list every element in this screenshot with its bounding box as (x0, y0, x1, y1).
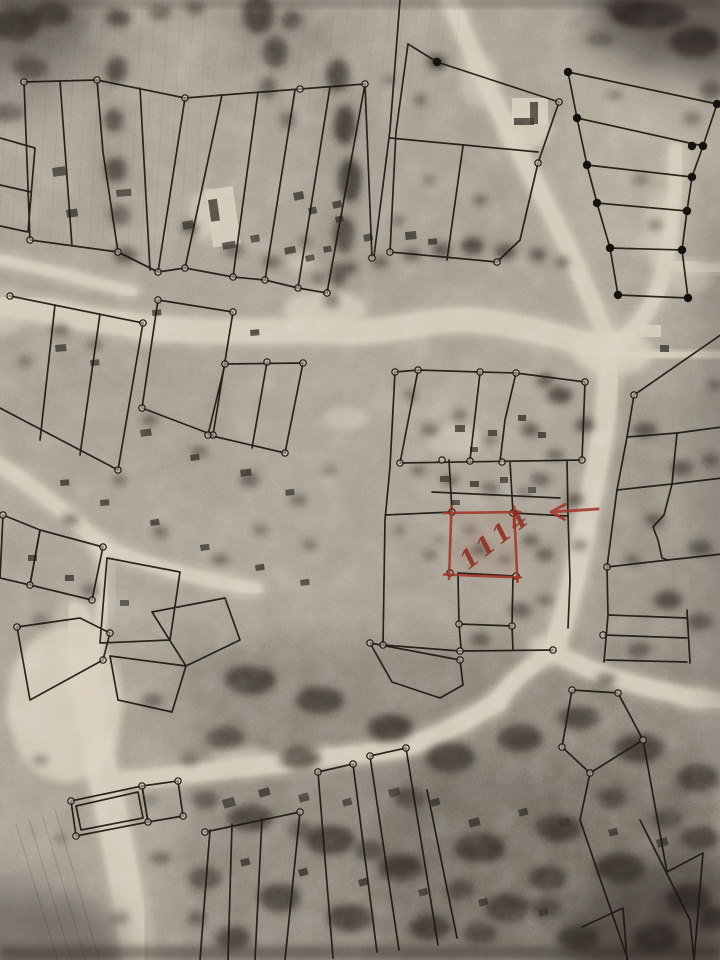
sepia-cast (0, 0, 720, 960)
cadastral-aerial-map: 1114 (0, 0, 720, 960)
aerial-photo-canvas: 1114 (0, 0, 720, 960)
